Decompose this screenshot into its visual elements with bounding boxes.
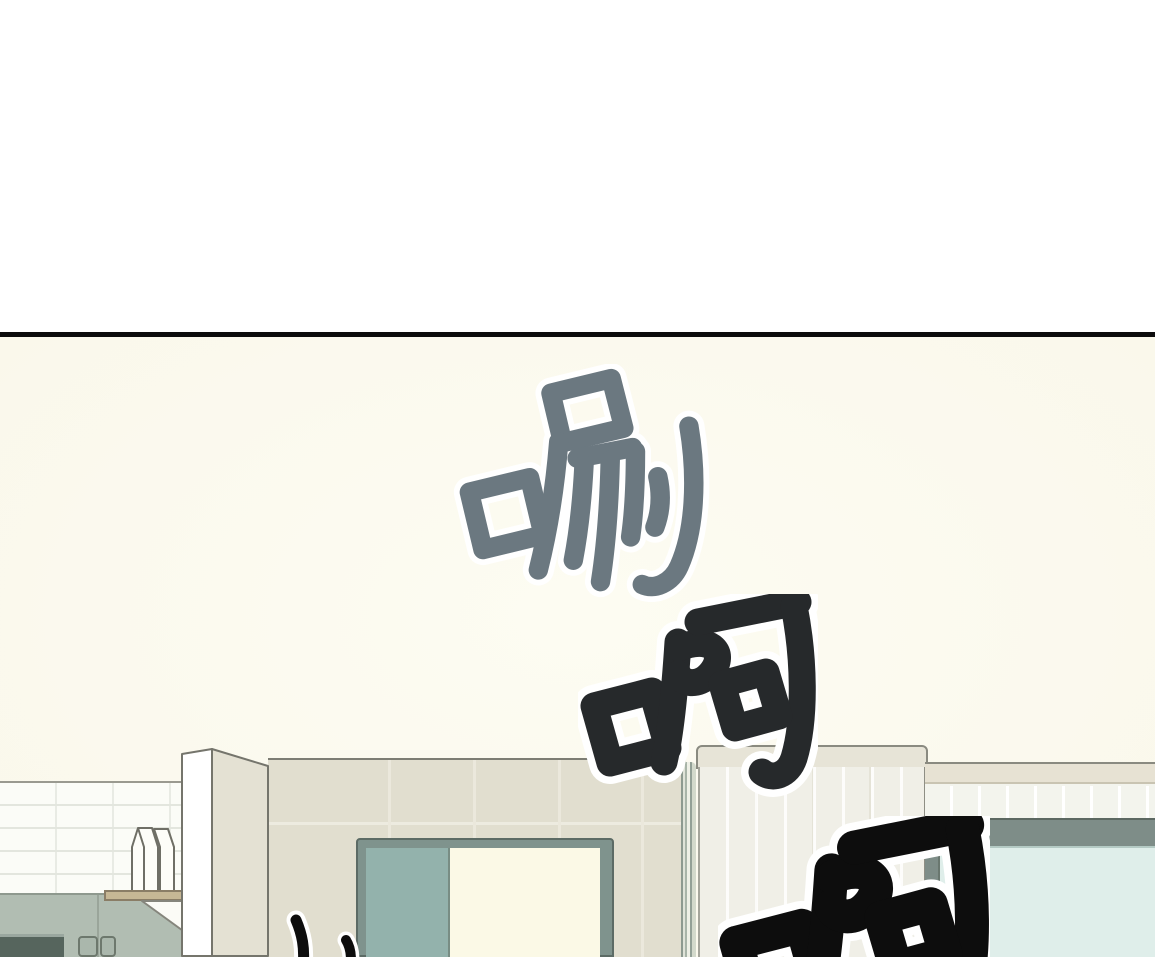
wall-pillar [180,744,270,957]
sfx-small-strokes [278,908,378,957]
mid-window-right-pane [448,848,600,957]
mid-window [356,838,614,957]
sfx-ah-2 [718,816,990,957]
tile-joint-horizontal [268,822,686,825]
top-margin-area [0,0,1155,332]
sfx-shua [448,364,720,602]
webtoon-panel [0,0,1155,957]
milk-cartons [126,820,178,894]
dark-appliance [0,934,64,957]
right-wall-trim-band [925,764,1155,784]
cabinet-handle [78,936,98,957]
mid-window-left-pane [366,848,448,957]
cabinet-handle [100,936,116,957]
sfx-ah-1 [578,594,818,799]
right-wall-tile-band [925,786,1155,818]
